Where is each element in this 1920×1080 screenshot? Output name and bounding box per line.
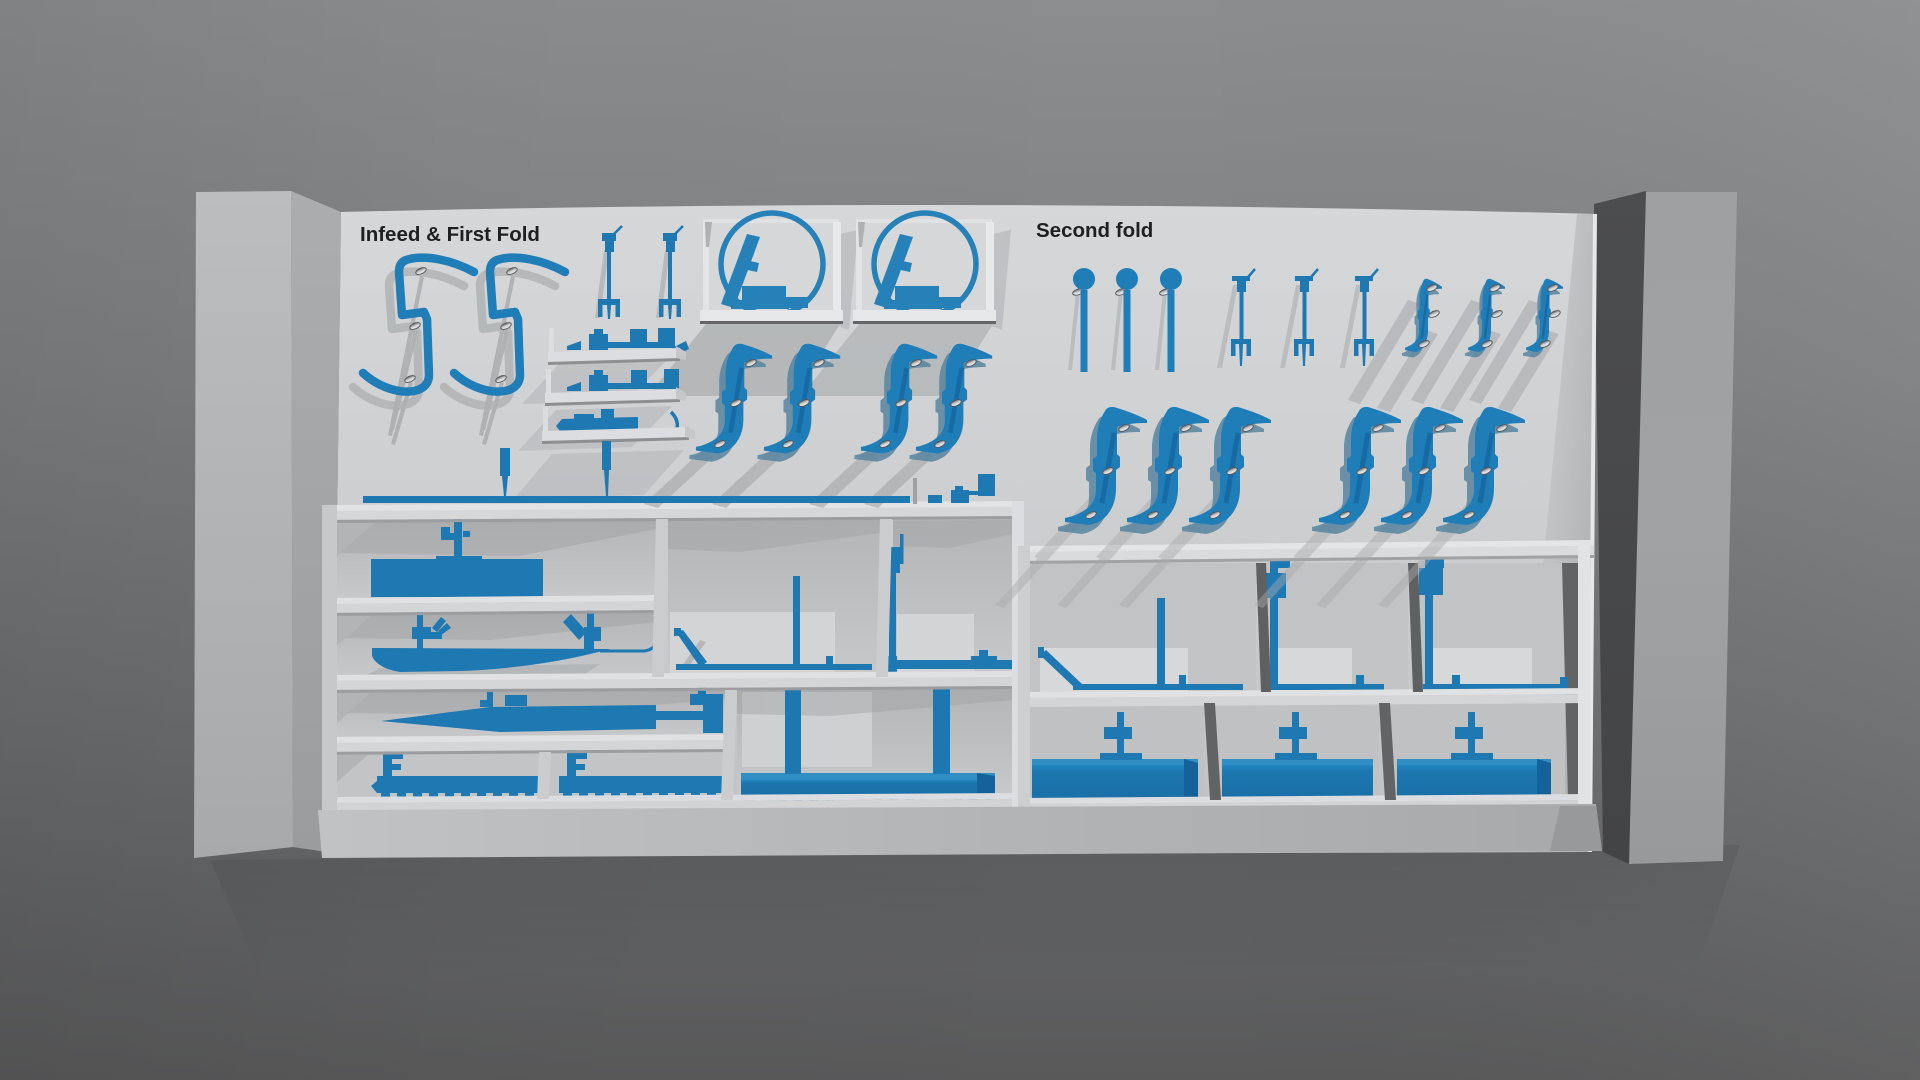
svg-text:Second fold: Second fold <box>1036 219 1153 242</box>
svg-text:Infeed & First Fold: Infeed & First Fold <box>360 223 540 246</box>
